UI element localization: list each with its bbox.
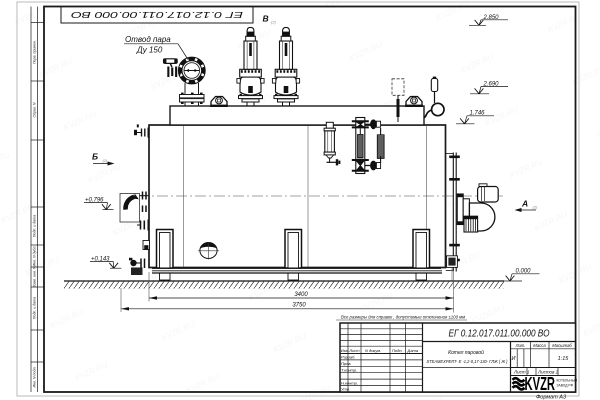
svg-text:Подп. и дата: Подп. и дата	[33, 297, 37, 320]
svg-text:Подп.: Подп.	[392, 348, 403, 353]
svg-text:Утв.: Утв.	[341, 387, 350, 392]
svg-text:ЕГ 0.12.017.011.00.000 ВО: ЕГ 0.12.017.011.00.000 ВО	[449, 329, 550, 340]
svg-text:ЗАВОД РФ: ЗАВОД РФ	[557, 384, 574, 388]
svg-text:Справ. N: Справ. N	[33, 102, 37, 117]
svg-text:Разраб.: Разраб.	[341, 355, 355, 360]
svg-text:Формат А3: Формат А3	[536, 394, 567, 400]
svg-text:1:15: 1:15	[558, 356, 570, 362]
svg-text:Изм.Лист: Изм.Лист	[341, 348, 360, 353]
svg-text:Т.контр.: Т.контр.	[341, 367, 357, 372]
svg-text:ЕГ 0.12.017.011.00.000 ВО: ЕГ 0.12.017.011.00.000 ВО	[70, 10, 243, 20]
svg-text:КОТЕЛЬНЫЙ: КОТЕЛЬНЫЙ	[557, 379, 578, 383]
svg-text:Дата: Дата	[407, 348, 419, 353]
svg-text:Б: Б	[92, 152, 98, 162]
svg-text:Ду 150: Ду 150	[136, 46, 163, 55]
svg-text:Отвод пара: Отвод пара	[125, 35, 171, 44]
svg-text:3400: 3400	[294, 292, 308, 298]
svg-text:+0.143: +0.143	[91, 256, 110, 262]
svg-text:(2): (2)	[533, 205, 539, 210]
svg-text:3750: 3750	[292, 303, 306, 309]
svg-text:Инв. N подл.: Инв. N подл.	[33, 366, 37, 387]
svg-text:(2): (2)	[271, 20, 277, 25]
svg-text:2.850: 2.850	[483, 15, 500, 21]
svg-text:Перв. примен.: Перв. примен.	[33, 40, 37, 64]
svg-text:Масса: Масса	[533, 343, 546, 348]
svg-text:STEAMEXPERT- Е -1,2-0,17-130-: STEAMEXPERT- Е -1,2-0,17-130- ГЛЖ ( Ж )	[427, 359, 508, 364]
svg-text:KVZR: KVZR	[525, 374, 556, 394]
svg-text:+0.796: +0.796	[85, 197, 104, 203]
svg-text:Лит.: Лит.	[515, 343, 526, 348]
svg-text:0.000: 0.000	[516, 268, 532, 274]
svg-text:N докум.: N докум.	[365, 348, 381, 353]
svg-text:И: И	[512, 356, 516, 362]
svg-text:Все размеры для справок , допу: Все размеры для справок , допустимые отк…	[341, 315, 466, 320]
svg-text:Инв. N дубл.: Инв. N дубл.	[33, 246, 37, 267]
svg-text:2.690: 2.690	[483, 81, 500, 87]
svg-text:А: А	[521, 199, 528, 209]
svg-text:1.746: 1.746	[470, 110, 486, 116]
svg-text:Подп. и дата: Подп. и дата	[33, 215, 37, 238]
svg-text:Н.контр.: Н.контр.	[341, 380, 358, 385]
svg-text:В: В	[263, 14, 269, 24]
svg-text:(2): (2)	[103, 158, 109, 163]
svg-text:Взам. инв. N: Взам. инв. N	[33, 266, 37, 287]
svg-text:Пров.: Пров.	[341, 361, 352, 366]
svg-text:Котел паровой: Котел паровой	[448, 349, 484, 356]
svg-text:Масштаб: Масштаб	[552, 343, 572, 348]
